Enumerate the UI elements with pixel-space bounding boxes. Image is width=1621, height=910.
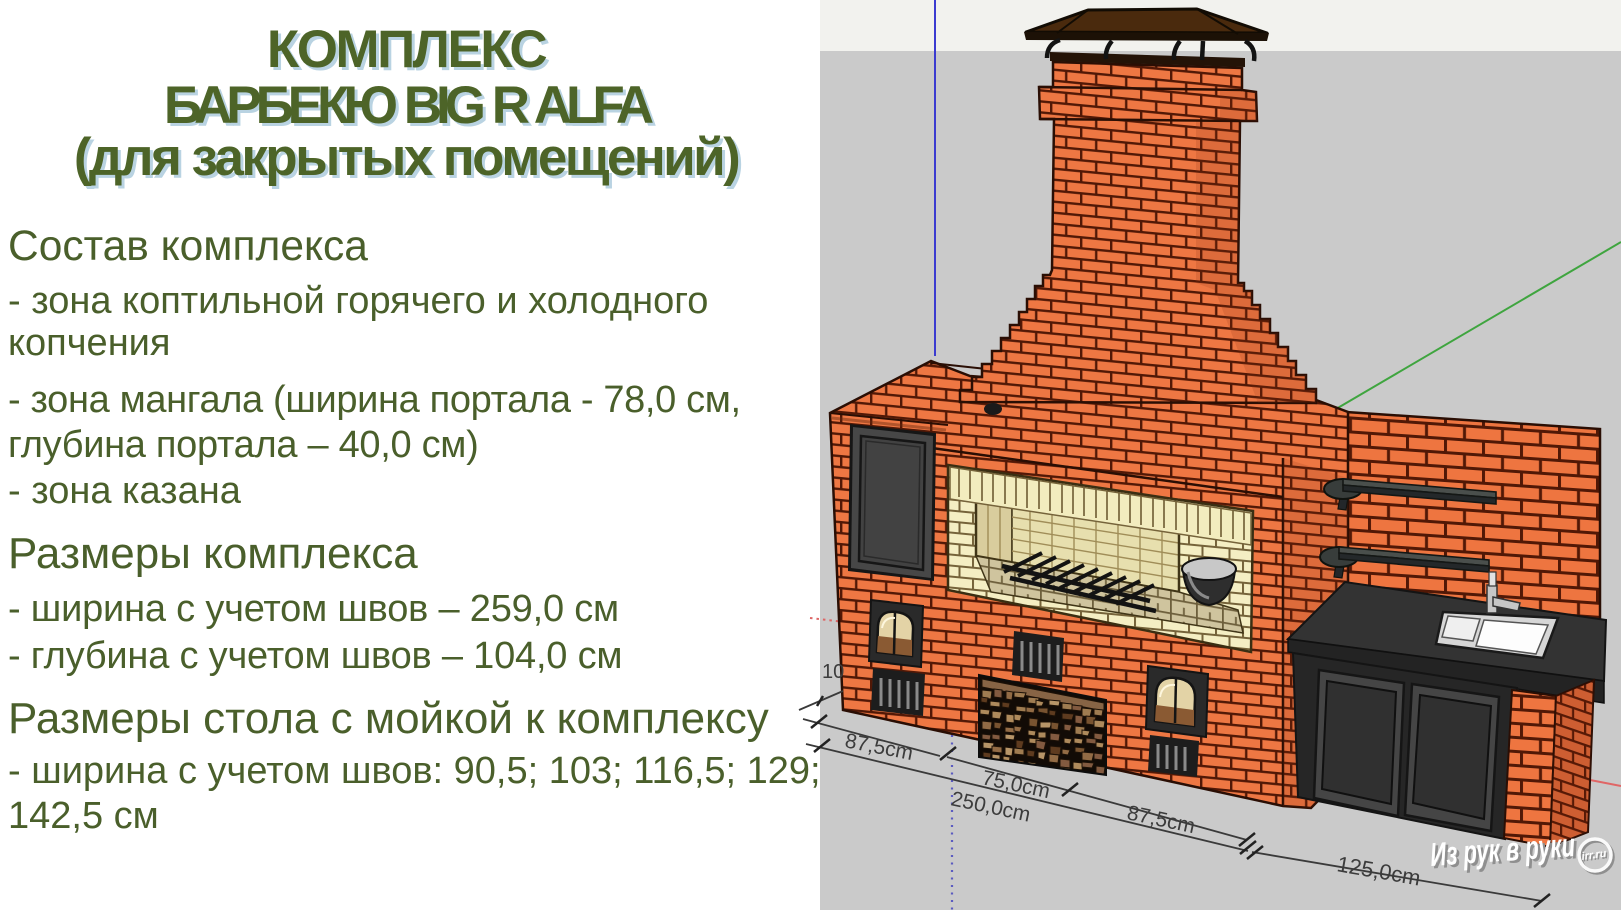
svg-text:10: 10 xyxy=(822,661,844,683)
